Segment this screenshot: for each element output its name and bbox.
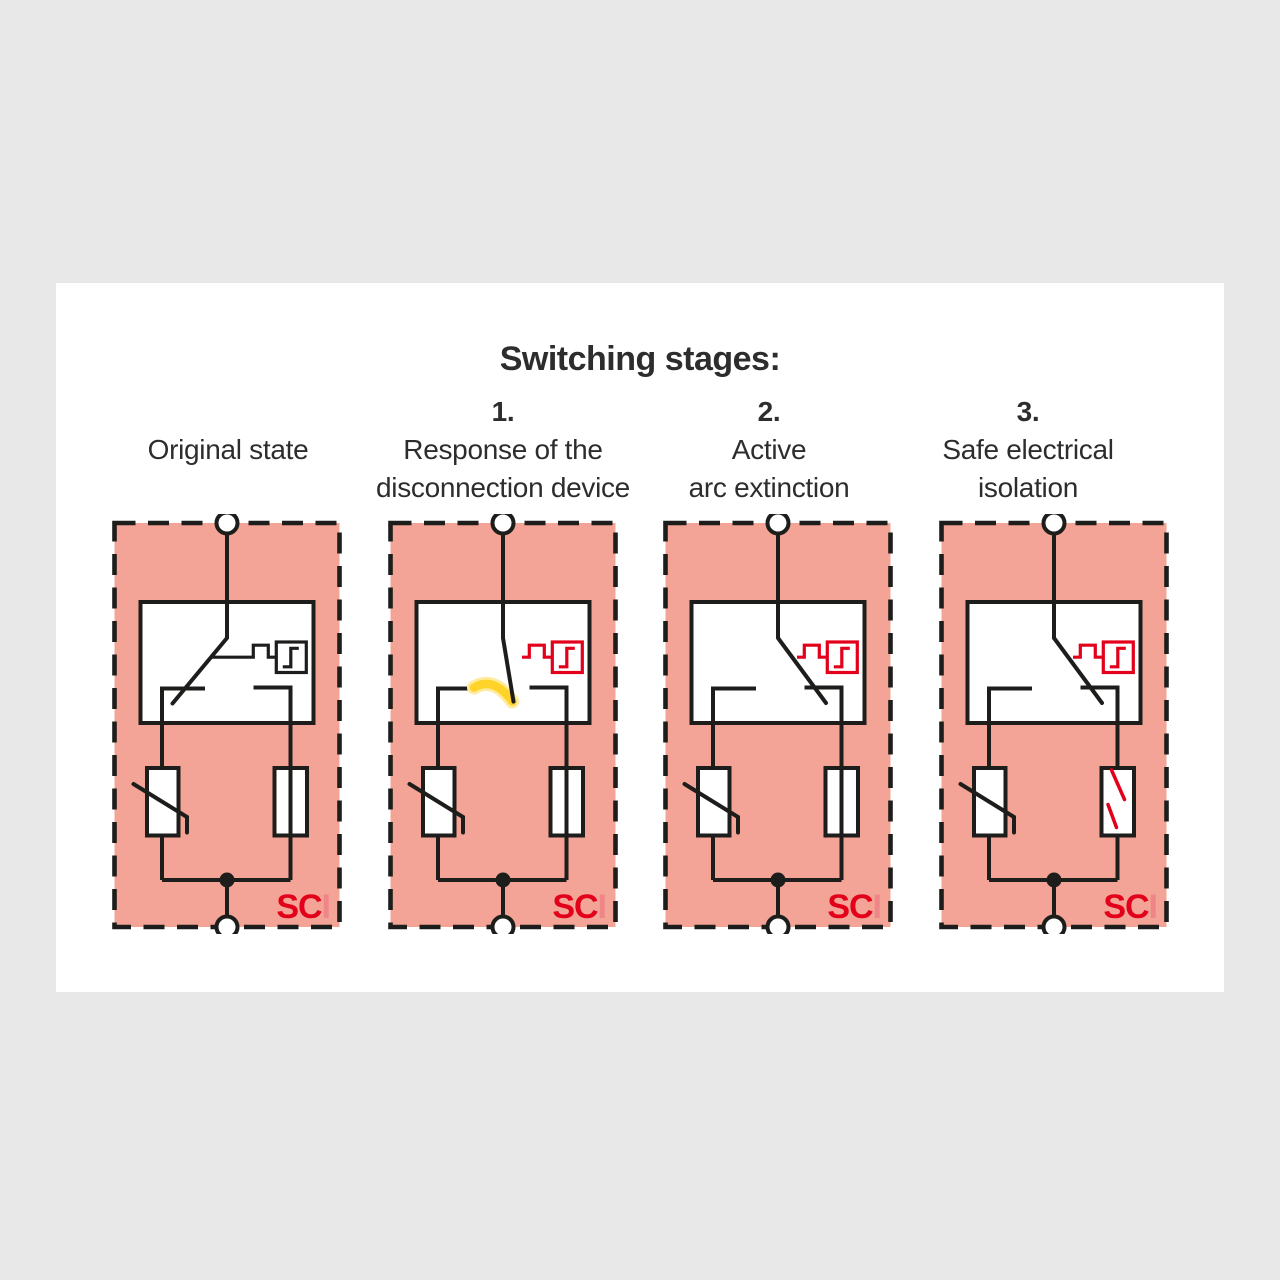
bottom-terminal-icon bbox=[217, 917, 238, 935]
stage-label-line: arc extinction bbox=[624, 469, 914, 507]
stage-label-line: isolation bbox=[883, 469, 1173, 507]
stage-header-original: Original state bbox=[83, 393, 373, 469]
stage-label-line: Original state bbox=[83, 431, 373, 469]
backup-fuse bbox=[1102, 768, 1135, 836]
stage-1-diagram: SCI bbox=[112, 514, 342, 934]
stage-2-diagram: SCI bbox=[388, 514, 618, 934]
stage-4-diagram: SCI bbox=[939, 514, 1169, 934]
stage-number: 3. bbox=[883, 393, 1173, 431]
page-background: { "title": "Switching stages:", "logo": … bbox=[0, 0, 1280, 1280]
bottom-terminal-icon bbox=[493, 917, 514, 935]
top-terminal-icon bbox=[217, 514, 238, 534]
stage-3-diagram: SCI bbox=[663, 514, 893, 934]
stage-number bbox=[83, 393, 373, 431]
stage-label-line: Response of the bbox=[358, 431, 648, 469]
stage-label-line: Active bbox=[624, 431, 914, 469]
top-terminal-icon bbox=[493, 514, 514, 534]
sci-logo: SCI bbox=[552, 888, 606, 926]
sci-logo: SCI bbox=[827, 888, 881, 926]
stage-label-line: disconnection device bbox=[358, 469, 648, 507]
top-terminal-icon bbox=[768, 514, 789, 534]
stage-label-line: Safe electrical bbox=[883, 431, 1173, 469]
stage-number: 1. bbox=[358, 393, 648, 431]
sci-logo: SCI bbox=[1103, 888, 1157, 926]
diagram-title: Switching stages: bbox=[56, 340, 1224, 379]
stage-header-3: 3. Safe electrical isolation bbox=[883, 393, 1173, 507]
sci-logo: SCI bbox=[276, 888, 330, 926]
bottom-terminal-icon bbox=[768, 917, 789, 935]
top-terminal-icon bbox=[1044, 514, 1065, 534]
diagram-card: Switching stages: Original state 1. Resp… bbox=[56, 283, 1224, 992]
bottom-terminal-icon bbox=[1044, 917, 1065, 935]
stage-header-2: 2. Active arc extinction bbox=[624, 393, 914, 507]
stage-number: 2. bbox=[624, 393, 914, 431]
stage-header-1: 1. Response of the disconnection device bbox=[358, 393, 648, 507]
